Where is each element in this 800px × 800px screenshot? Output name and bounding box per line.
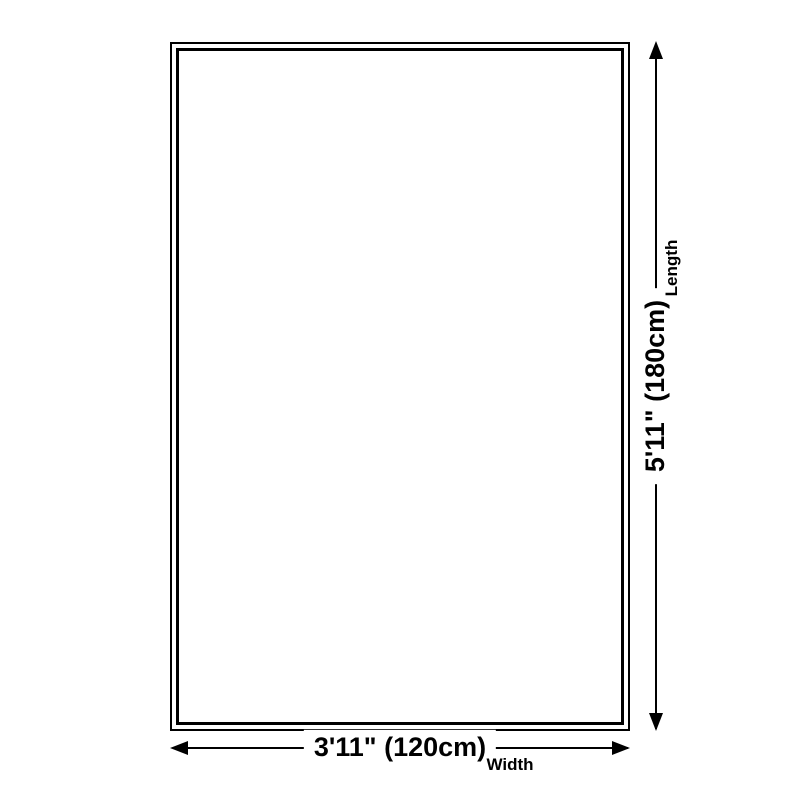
rug-size-diagram: 5'11" (180cm) Length 3'11" (120cm) Width <box>0 0 800 800</box>
arrowhead-right-icon <box>612 741 630 755</box>
arrowhead-down-icon <box>649 713 663 731</box>
width-value: 3'11" (120cm) <box>304 730 496 764</box>
arrowhead-left-icon <box>170 741 188 755</box>
rug-outline <box>170 42 630 731</box>
arrowhead-up-icon <box>649 41 663 59</box>
rug-inner-outline <box>176 48 624 725</box>
width-label: Width <box>486 755 533 775</box>
length-value: 5'11" (180cm) <box>638 288 672 484</box>
length-label: Length <box>662 240 682 297</box>
